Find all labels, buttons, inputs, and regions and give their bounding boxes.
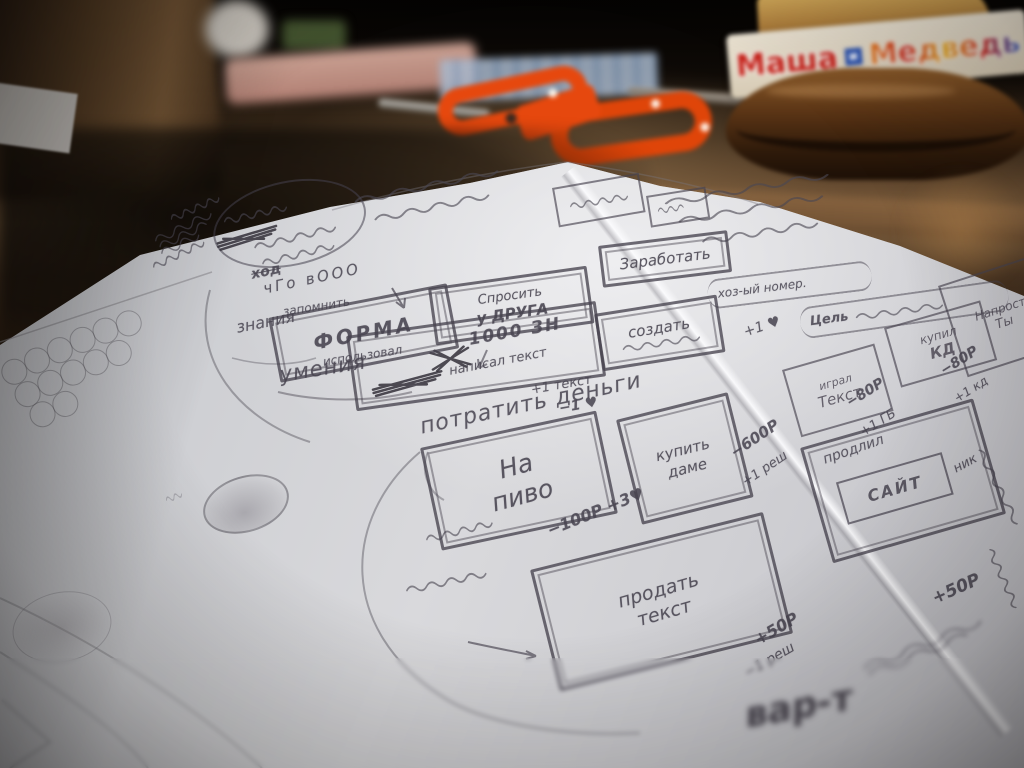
box-buy-line2: даме <box>666 454 709 481</box>
box-sell-line1: продать <box>616 568 702 612</box>
pencil-scribble <box>621 332 701 353</box>
background-object-white <box>205 0 269 58</box>
jar-shine <box>766 84 956 98</box>
banner-goal-label: Цель <box>809 310 849 329</box>
jar-rim <box>736 106 1016 152</box>
box-site-line3: ник <box>951 452 979 476</box>
box-create-label: создать <box>627 314 692 342</box>
pencil-scribble <box>568 190 629 209</box>
box-sell-line2: текст <box>635 595 695 632</box>
pencil-strike-scribble <box>369 366 445 400</box>
pencil-circle-cluster <box>0 306 159 438</box>
box-ask-line1: Спросить <box>477 284 543 308</box>
photo-scene: Маша и Медведь <box>0 0 1024 768</box>
box-beer-line1: На <box>496 448 536 485</box>
box-site-inner: САЙТ <box>836 452 954 525</box>
box-buy-line1: купить <box>654 434 712 465</box>
jar-label-text-medved: Медведь <box>867 25 1021 72</box>
glass-jar: Маша и Медведь <box>728 0 1024 193</box>
box-beer-line2: пиво <box>488 473 556 517</box>
jar-label-text-i: и <box>844 47 863 65</box>
background-object-green <box>282 20 346 50</box>
box-1000-chars-label: 1000 ЗН <box>468 316 563 350</box>
box-site-line1: продлил <box>821 433 886 467</box>
box-earn-label: Заработать <box>619 244 712 273</box>
jar-glass-base <box>726 68 1024 180</box>
box-1000-chars-sub: написал текст <box>448 346 548 378</box>
paper-scrap <box>0 83 78 154</box>
pencil-scribble <box>657 200 700 214</box>
depth-of-field-blur <box>0 658 1024 768</box>
banner-number-label: хоз-ый номер. <box>717 277 807 300</box>
